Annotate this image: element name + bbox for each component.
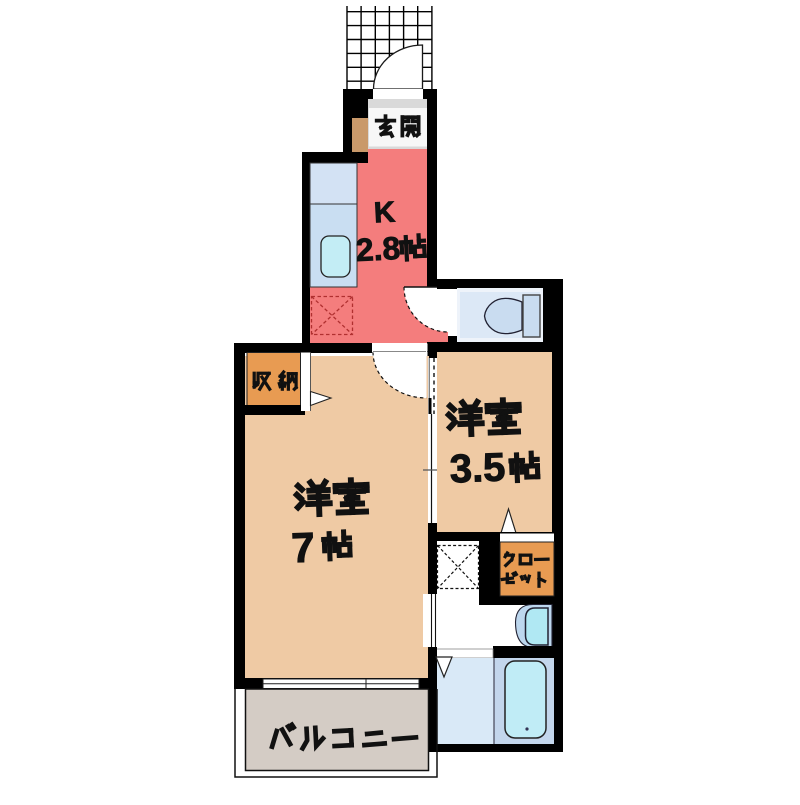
svg-text:3.5: 3.5	[449, 446, 506, 492]
svg-text:2.8: 2.8	[355, 230, 401, 268]
svg-text:7: 7	[291, 524, 316, 572]
svg-text:K: K	[373, 196, 396, 229]
